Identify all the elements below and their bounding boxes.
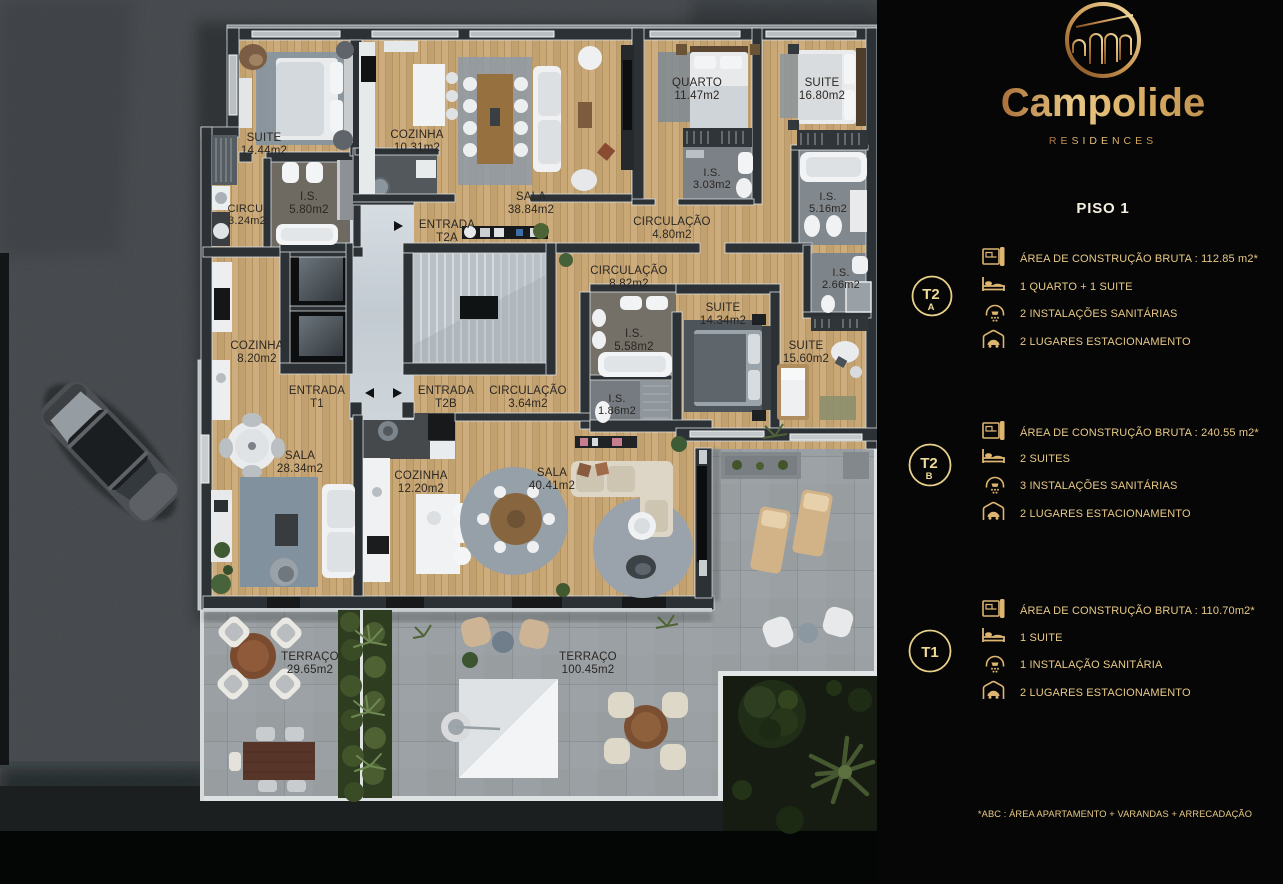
svg-text:5.80m2: 5.80m2 — [289, 204, 329, 216]
svg-text:TERRAÇO: TERRAÇO — [281, 651, 339, 663]
svg-text:100.45m2: 100.45m2 — [562, 664, 615, 676]
svg-text:29.65m2: 29.65m2 — [287, 664, 333, 676]
svg-text:SUITE: SUITE — [247, 132, 282, 144]
svg-text:14.44m2: 14.44m2 — [241, 145, 287, 157]
svg-text:I.S.: I.S. — [300, 191, 318, 203]
svg-text:14.34m2: 14.34m2 — [700, 315, 746, 327]
svg-text:2 INSTALAÇÕES SANITÁRIAS: 2 INSTALAÇÕES SANITÁRIAS — [1020, 307, 1177, 320]
svg-text:I.S.: I.S. — [625, 328, 643, 340]
svg-text:8.20m2: 8.20m2 — [237, 353, 277, 365]
svg-text:ÁREA DE CONSTRUÇÃO BRUTA : 11: ÁREA DE CONSTRUÇÃO BRUTA : 112.85 m2* — [1020, 252, 1259, 265]
svg-text:Campolide: Campolide — [1001, 81, 1205, 125]
svg-text:ÁREA DE CONSTRUÇÃO BRUTA : 24: ÁREA DE CONSTRUÇÃO BRUTA : 240.55 m2* — [1020, 426, 1259, 439]
svg-text:T2B: T2B — [435, 398, 457, 410]
svg-text:8.82m2: 8.82m2 — [609, 278, 649, 290]
svg-text:SUITE: SUITE — [805, 77, 840, 89]
svg-text:3.03m2: 3.03m2 — [693, 179, 731, 191]
svg-text:16.80m2: 16.80m2 — [799, 90, 845, 102]
svg-text:2.66m2: 2.66m2 — [822, 279, 860, 291]
svg-text:*ABC : ÁREA APARTAMENTO + VAR: *ABC : ÁREA APARTAMENTO + VARANDAS + ARR… — [978, 809, 1252, 819]
svg-text:A: A — [928, 302, 935, 313]
svg-text:T1: T1 — [310, 398, 324, 410]
svg-text:5.58m2: 5.58m2 — [614, 341, 654, 353]
svg-text:1 QUARTO + 1 SUITE: 1 QUARTO + 1 SUITE — [1020, 281, 1133, 293]
svg-text:CIRCULAÇÃO: CIRCULAÇÃO — [590, 264, 667, 277]
svg-text:I.S.: I.S. — [819, 191, 836, 203]
svg-text:3.24m2: 3.24m2 — [228, 215, 266, 227]
svg-text:ÁREA DE CONSTRUÇÃO BRUTA : 11: ÁREA DE CONSTRUÇÃO BRUTA : 110.70m2* — [1020, 604, 1255, 617]
svg-text:CIRCULAÇÃO: CIRCULAÇÃO — [489, 384, 566, 397]
svg-text:TERRAÇO: TERRAÇO — [559, 651, 617, 663]
svg-text:2 LUGARES ESTACIONAMENTO: 2 LUGARES ESTACIONAMENTO — [1020, 508, 1191, 520]
svg-text:SALA: SALA — [537, 467, 567, 479]
svg-text:2 SUITES: 2 SUITES — [1020, 453, 1070, 465]
svg-text:SUITE: SUITE — [789, 340, 824, 352]
svg-text:3 INSTALAÇÕES SANITÁRIAS: 3 INSTALAÇÕES SANITÁRIAS — [1020, 479, 1177, 492]
svg-text:3.64m2: 3.64m2 — [508, 398, 548, 410]
svg-text:COZINHA: COZINHA — [390, 129, 443, 141]
svg-text:CIRCULAÇÃO: CIRCULAÇÃO — [633, 215, 710, 228]
svg-text:11.47m2: 11.47m2 — [674, 90, 719, 102]
svg-text:12.20m2: 12.20m2 — [398, 483, 444, 495]
svg-text:28.34m2: 28.34m2 — [277, 463, 323, 475]
svg-text:I.S.: I.S. — [703, 167, 720, 179]
svg-text:COZINHA: COZINHA — [394, 470, 447, 482]
svg-text:T2A: T2A — [436, 232, 458, 244]
svg-text:SALA: SALA — [516, 191, 546, 203]
svg-text:QUARTO: QUARTO — [672, 77, 722, 89]
svg-text:4.80m2: 4.80m2 — [652, 229, 692, 241]
svg-text:5.16m2: 5.16m2 — [809, 203, 847, 215]
svg-text:15.60m2: 15.60m2 — [783, 353, 829, 365]
svg-text:38.84m2: 38.84m2 — [508, 204, 554, 216]
svg-text:CIRCU.: CIRCU. — [227, 203, 266, 215]
svg-text:PISO 1: PISO 1 — [1076, 200, 1129, 217]
svg-text:1 INSTALAÇÃO SANITÁRIA: 1 INSTALAÇÃO SANITÁRIA — [1020, 658, 1163, 671]
svg-text:T2: T2 — [922, 286, 940, 303]
svg-text:I.S.: I.S. — [832, 267, 849, 279]
svg-text:SUITE: SUITE — [706, 302, 741, 314]
svg-text:I.S.: I.S. — [608, 393, 625, 405]
svg-text:1 SUITE: 1 SUITE — [1020, 632, 1063, 644]
svg-text:10.31m2: 10.31m2 — [394, 142, 440, 154]
svg-text:2 LUGARES ESTACIONAMENTO: 2 LUGARES ESTACIONAMENTO — [1020, 687, 1191, 699]
svg-text:T1: T1 — [921, 644, 939, 661]
svg-text:1.86m2: 1.86m2 — [598, 405, 636, 417]
svg-text:B: B — [926, 471, 933, 482]
svg-text:ENTRADA: ENTRADA — [418, 385, 474, 397]
svg-text:RESIDENCES: RESIDENCES — [1049, 135, 1157, 147]
svg-text:T2: T2 — [920, 455, 938, 472]
svg-text:2 LUGARES ESTACIONAMENTO: 2 LUGARES ESTACIONAMENTO — [1020, 336, 1191, 348]
svg-text:40.41m2: 40.41m2 — [529, 480, 575, 492]
svg-text:ENTRADA: ENTRADA — [419, 219, 475, 231]
svg-text:SALA: SALA — [285, 450, 315, 462]
svg-text:ENTRADA: ENTRADA — [289, 385, 345, 397]
svg-text:COZINHA: COZINHA — [230, 340, 283, 352]
